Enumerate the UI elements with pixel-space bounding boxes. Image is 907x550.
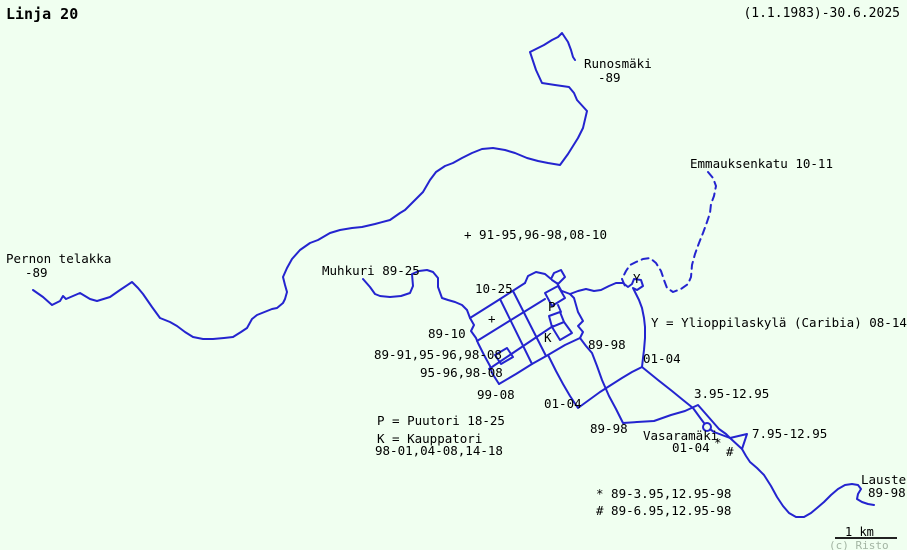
map-label-muhkuri: Muhkuri 89-25 bbox=[322, 264, 420, 277]
route-lauste-line bbox=[742, 449, 874, 517]
map-label-marker-y: Y bbox=[633, 272, 641, 285]
map-label-pernon-telakka: Pernon telakka bbox=[6, 252, 111, 265]
map-label-years-3-95: 3.95-12.95 bbox=[694, 387, 769, 400]
map-label-years-7-95: 7.95-12.95 bbox=[752, 427, 827, 440]
map-label-vasaramaki-years: 01-04 bbox=[672, 441, 710, 454]
map-label-years-89-10: 89-10 bbox=[428, 327, 466, 340]
page-title: Linja 20 bbox=[6, 5, 78, 23]
map-label-years-10-25: 10-25 bbox=[475, 282, 513, 295]
map-label-years-89-91: 89-91,95-96,98-08 bbox=[374, 348, 502, 361]
map-label-pernon-years: -89 bbox=[25, 266, 48, 279]
map-label-years-95-96: 95-96,98-08 bbox=[420, 366, 503, 379]
map-label-lauste-years: 89-98 bbox=[868, 486, 906, 499]
map-label-marker-star: * bbox=[714, 436, 722, 449]
route-kauppatori-block bbox=[552, 322, 572, 340]
route-grid-cross-1 bbox=[500, 299, 532, 364]
copyright-credit: (c) Risto Leino bbox=[829, 539, 907, 550]
map-label-marker-plus: + bbox=[488, 312, 496, 325]
map-label-years-01-04-center: 01-04 bbox=[544, 397, 582, 410]
map-label-marker-hash: # bbox=[726, 445, 734, 458]
route-top-loop-10-25 bbox=[525, 270, 565, 284]
map-label-marker-k: K bbox=[544, 331, 552, 344]
map-label-years-99-08: 99-08 bbox=[477, 388, 515, 401]
date-range: (1.1.1983)-30.6.2025 bbox=[743, 6, 900, 21]
map-label-plus-years: + 91-95,96-98,08-10 bbox=[464, 228, 607, 241]
map-label-years-89-98-lower: 89-98 bbox=[590, 422, 628, 435]
map-label-years-89-98-upper: 89-98 bbox=[588, 338, 626, 351]
map-canvas: Runosmäki-89Emmauksenkatu 10-11+ 91-95,9… bbox=[0, 0, 907, 550]
map-label-emmauksenkatu: Emmauksenkatu 10-11 bbox=[690, 157, 833, 170]
map-label-runosmaki-years: -89 bbox=[598, 71, 621, 84]
map-label-marker-p: P bbox=[548, 300, 556, 313]
map-label-k-legend-2: 98-01,04-08,14-18 bbox=[375, 444, 503, 457]
map-label-years-01-04-right: 01-04 bbox=[643, 352, 681, 365]
map-label-star-legend: * 89-3.95,12.95-98 bbox=[596, 487, 731, 500]
map-label-y-legend: Y = Ylioppilaskylä (Caribia) 08-14 bbox=[651, 316, 907, 329]
route-puutori-connector-2 bbox=[558, 305, 561, 312]
map-label-hash-legend: # 89-6.95,12.95-98 bbox=[596, 504, 731, 517]
route-layer bbox=[0, 0, 907, 550]
map-label-p-legend: P = Puutori 18-25 bbox=[377, 414, 505, 427]
map-label-runosmaki: Runosmäki bbox=[584, 57, 652, 70]
